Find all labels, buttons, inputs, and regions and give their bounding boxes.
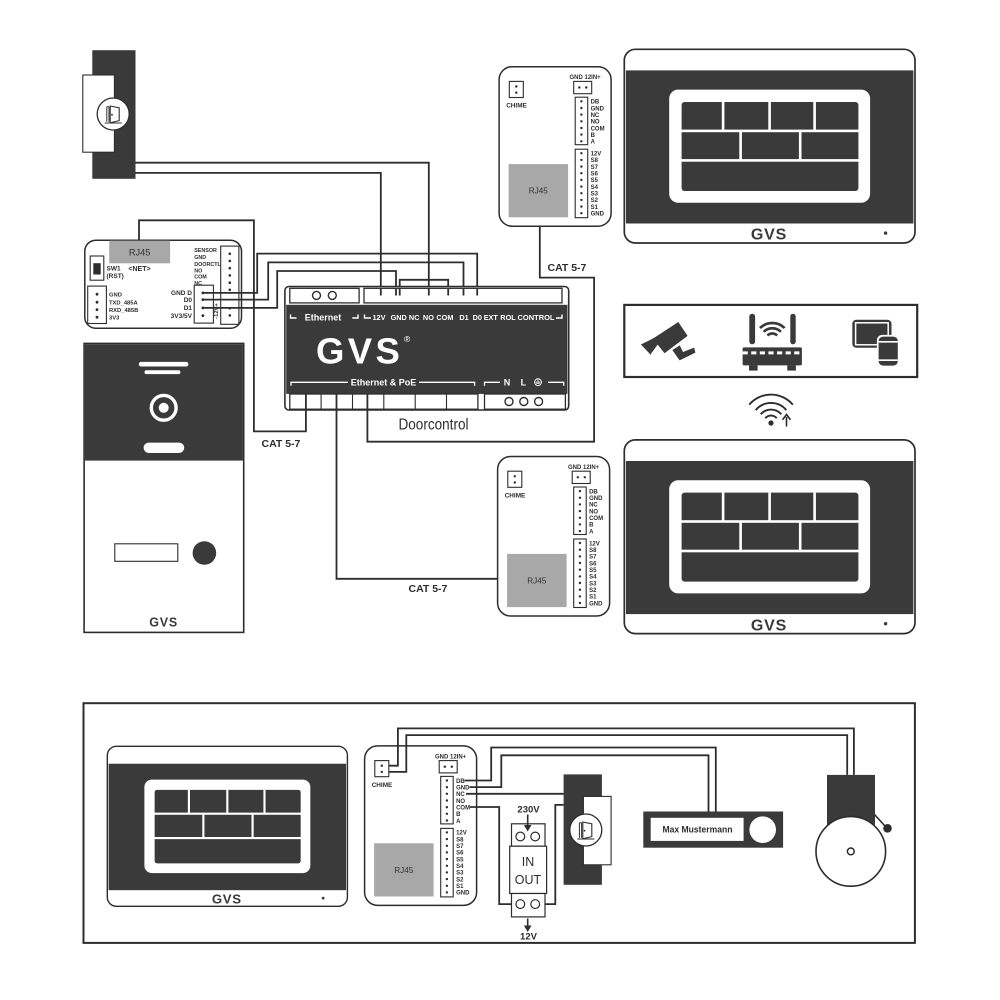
svg-text:Max Mustermann: Max Mustermann [663, 825, 733, 835]
svg-text:CAT 5-7: CAT 5-7 [548, 262, 587, 274]
svg-text:DOORCTL: DOORCTL [194, 262, 221, 268]
svg-text:TXD_485A: TXD_485A [109, 301, 138, 307]
svg-text:NC: NC [194, 281, 202, 287]
svg-text:COM: COM [194, 274, 207, 280]
svg-text:GND: GND [109, 293, 122, 299]
svg-text:L: L [521, 378, 527, 388]
svg-text:OUT: OUT [515, 873, 542, 887]
svg-text:Ethernet & PoE: Ethernet & PoE [351, 377, 417, 387]
svg-text:(RST): (RST) [107, 273, 124, 280]
svg-text:N: N [504, 378, 511, 388]
svg-text:D0: D0 [473, 313, 482, 322]
svg-text:CAT 5-7: CAT 5-7 [409, 583, 448, 595]
svg-text:D1: D1 [184, 305, 193, 312]
svg-text:ROL: ROL [500, 313, 516, 322]
svg-text:NO: NO [423, 313, 434, 322]
svg-text:3V3/5V: 3V3/5V [171, 313, 193, 320]
svg-text:GVS: GVS [316, 331, 403, 372]
svg-text:-12V+: -12V+ [214, 303, 220, 319]
svg-text:SW1: SW1 [107, 266, 121, 273]
svg-text:CAT 5-7: CAT 5-7 [262, 438, 301, 450]
svg-text:Ethernet: Ethernet [305, 312, 342, 322]
svg-text:EXT: EXT [484, 313, 499, 322]
svg-text:<NET>: <NET> [128, 266, 150, 273]
svg-text:D0: D0 [184, 297, 193, 304]
svg-text:COM: COM [436, 313, 453, 322]
svg-text:CONTROL: CONTROL [518, 313, 556, 322]
svg-text:GND: GND [391, 313, 407, 322]
svg-text:GVS: GVS [149, 616, 178, 630]
svg-text:IN: IN [522, 855, 535, 869]
svg-text:230V: 230V [517, 805, 540, 816]
svg-text:RXD_485B: RXD_485B [109, 308, 138, 314]
svg-text:Doorcontrol: Doorcontrol [399, 417, 469, 434]
svg-text:12V: 12V [373, 313, 386, 322]
svg-text:12V: 12V [520, 932, 538, 943]
svg-text:NC: NC [409, 313, 420, 322]
svg-text:RJ45: RJ45 [129, 248, 150, 258]
svg-text:3V3: 3V3 [109, 316, 120, 322]
svg-text:D1: D1 [459, 313, 468, 322]
svg-text:GND: GND [194, 255, 206, 261]
svg-text:®: ® [404, 334, 411, 344]
svg-text:SENSOR: SENSOR [194, 248, 217, 254]
